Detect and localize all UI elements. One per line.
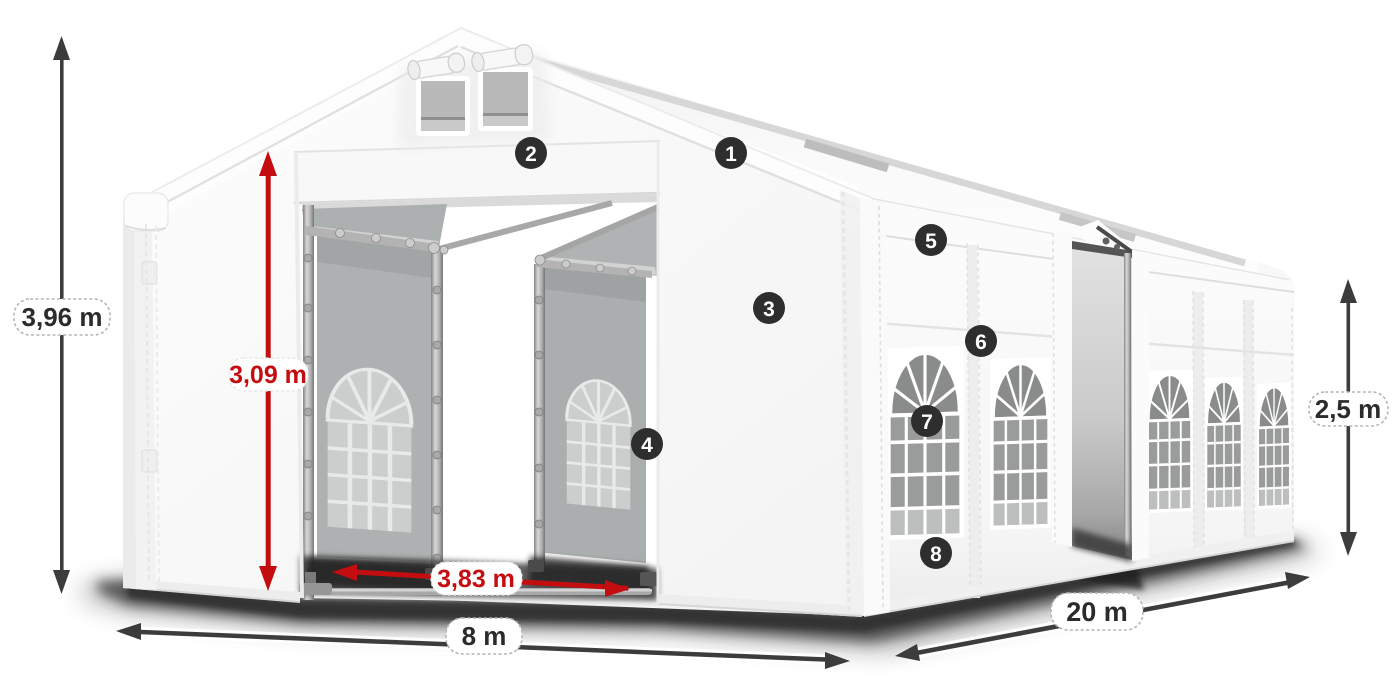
svg-text:3,09 m: 3,09 m	[229, 361, 307, 389]
svg-text:6: 6	[975, 331, 987, 354]
svg-text:8: 8	[930, 543, 942, 566]
svg-text:5: 5	[925, 230, 937, 253]
svg-text:7: 7	[921, 411, 933, 434]
svg-text:3: 3	[763, 298, 775, 321]
svg-text:1: 1	[725, 143, 737, 166]
svg-text:2,5 m: 2,5 m	[1315, 394, 1382, 424]
svg-text:8 m: 8 m	[462, 621, 507, 651]
svg-text:4: 4	[641, 434, 653, 457]
svg-text:3,83 m: 3,83 m	[437, 565, 515, 593]
svg-text:3,96 m: 3,96 m	[22, 302, 103, 332]
svg-text:2: 2	[525, 143, 537, 166]
svg-text:20 m: 20 m	[1066, 597, 1128, 627]
